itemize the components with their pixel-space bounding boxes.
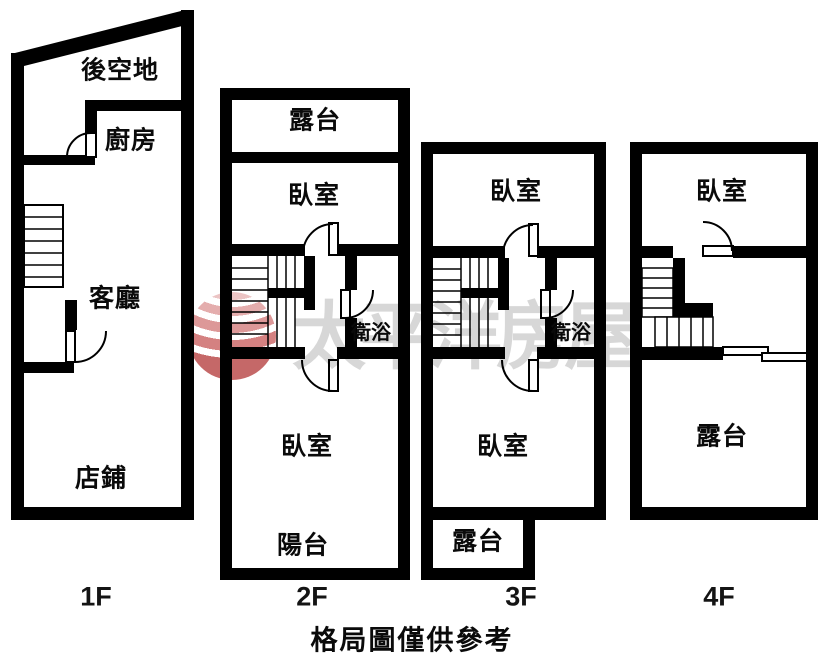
floor-label-1f: 1F: [80, 584, 112, 611]
door-leaf: [529, 224, 538, 256]
stair-outline: [642, 268, 673, 317]
caption-text: 格局圖僅供參考: [311, 628, 514, 655]
room-label-3f-bedroom-2: 臥室: [477, 435, 529, 460]
door-symbol: [66, 331, 106, 362]
window-pane: [762, 353, 807, 361]
stair-outline: [655, 317, 713, 347]
room-label-2f-terrace: 露台: [289, 109, 341, 134]
door-symbol: [703, 222, 733, 256]
room-label-4f-terrace: 露台: [696, 425, 748, 450]
door-leaf: [66, 331, 75, 362]
room-label-2f-balcony: 陽台: [277, 534, 329, 559]
room-label-1f-kitchen: 廚房: [105, 129, 157, 154]
floorplan-image: 後空地 廚房 客廳 店鋪 露台 臥室 衛浴 臥室 陽台 臥室 衛浴 臥室 露台 …: [0, 0, 830, 672]
room-label-4f-bedroom: 臥室: [696, 180, 748, 205]
door-symbol: [503, 224, 538, 256]
door-symbol: [67, 133, 96, 157]
door-leaf: [86, 133, 96, 157]
room-label-1f-shop: 店鋪: [75, 467, 127, 492]
door-symbol: [303, 223, 338, 255]
door-leaf: [329, 223, 338, 255]
door-leaf: [703, 246, 733, 256]
room-label-2f-bedroom-2: 臥室: [281, 435, 333, 460]
floor-1f-plan: [11, 10, 194, 520]
room-label-3f-bedroom-1: 臥室: [490, 180, 542, 205]
floor-label-4f: 4F: [703, 584, 735, 611]
brand-logo: [188, 292, 276, 380]
room-label-2f-bedroom-1: 臥室: [288, 184, 340, 209]
floor-label-2f: 2F: [296, 584, 328, 611]
room-label-1f-backyard: 後空地: [81, 59, 159, 84]
staircase-symbol: [24, 205, 63, 287]
door-arc: [75, 331, 106, 362]
watermark-text: 太平洋房屋: [292, 300, 632, 374]
window-symbol: [723, 347, 807, 361]
floor-label-3f: 3F: [505, 584, 537, 611]
room-label-1f-livingroom: 客廳: [89, 287, 141, 312]
room-label-3f-terrace: 露台: [452, 530, 504, 555]
